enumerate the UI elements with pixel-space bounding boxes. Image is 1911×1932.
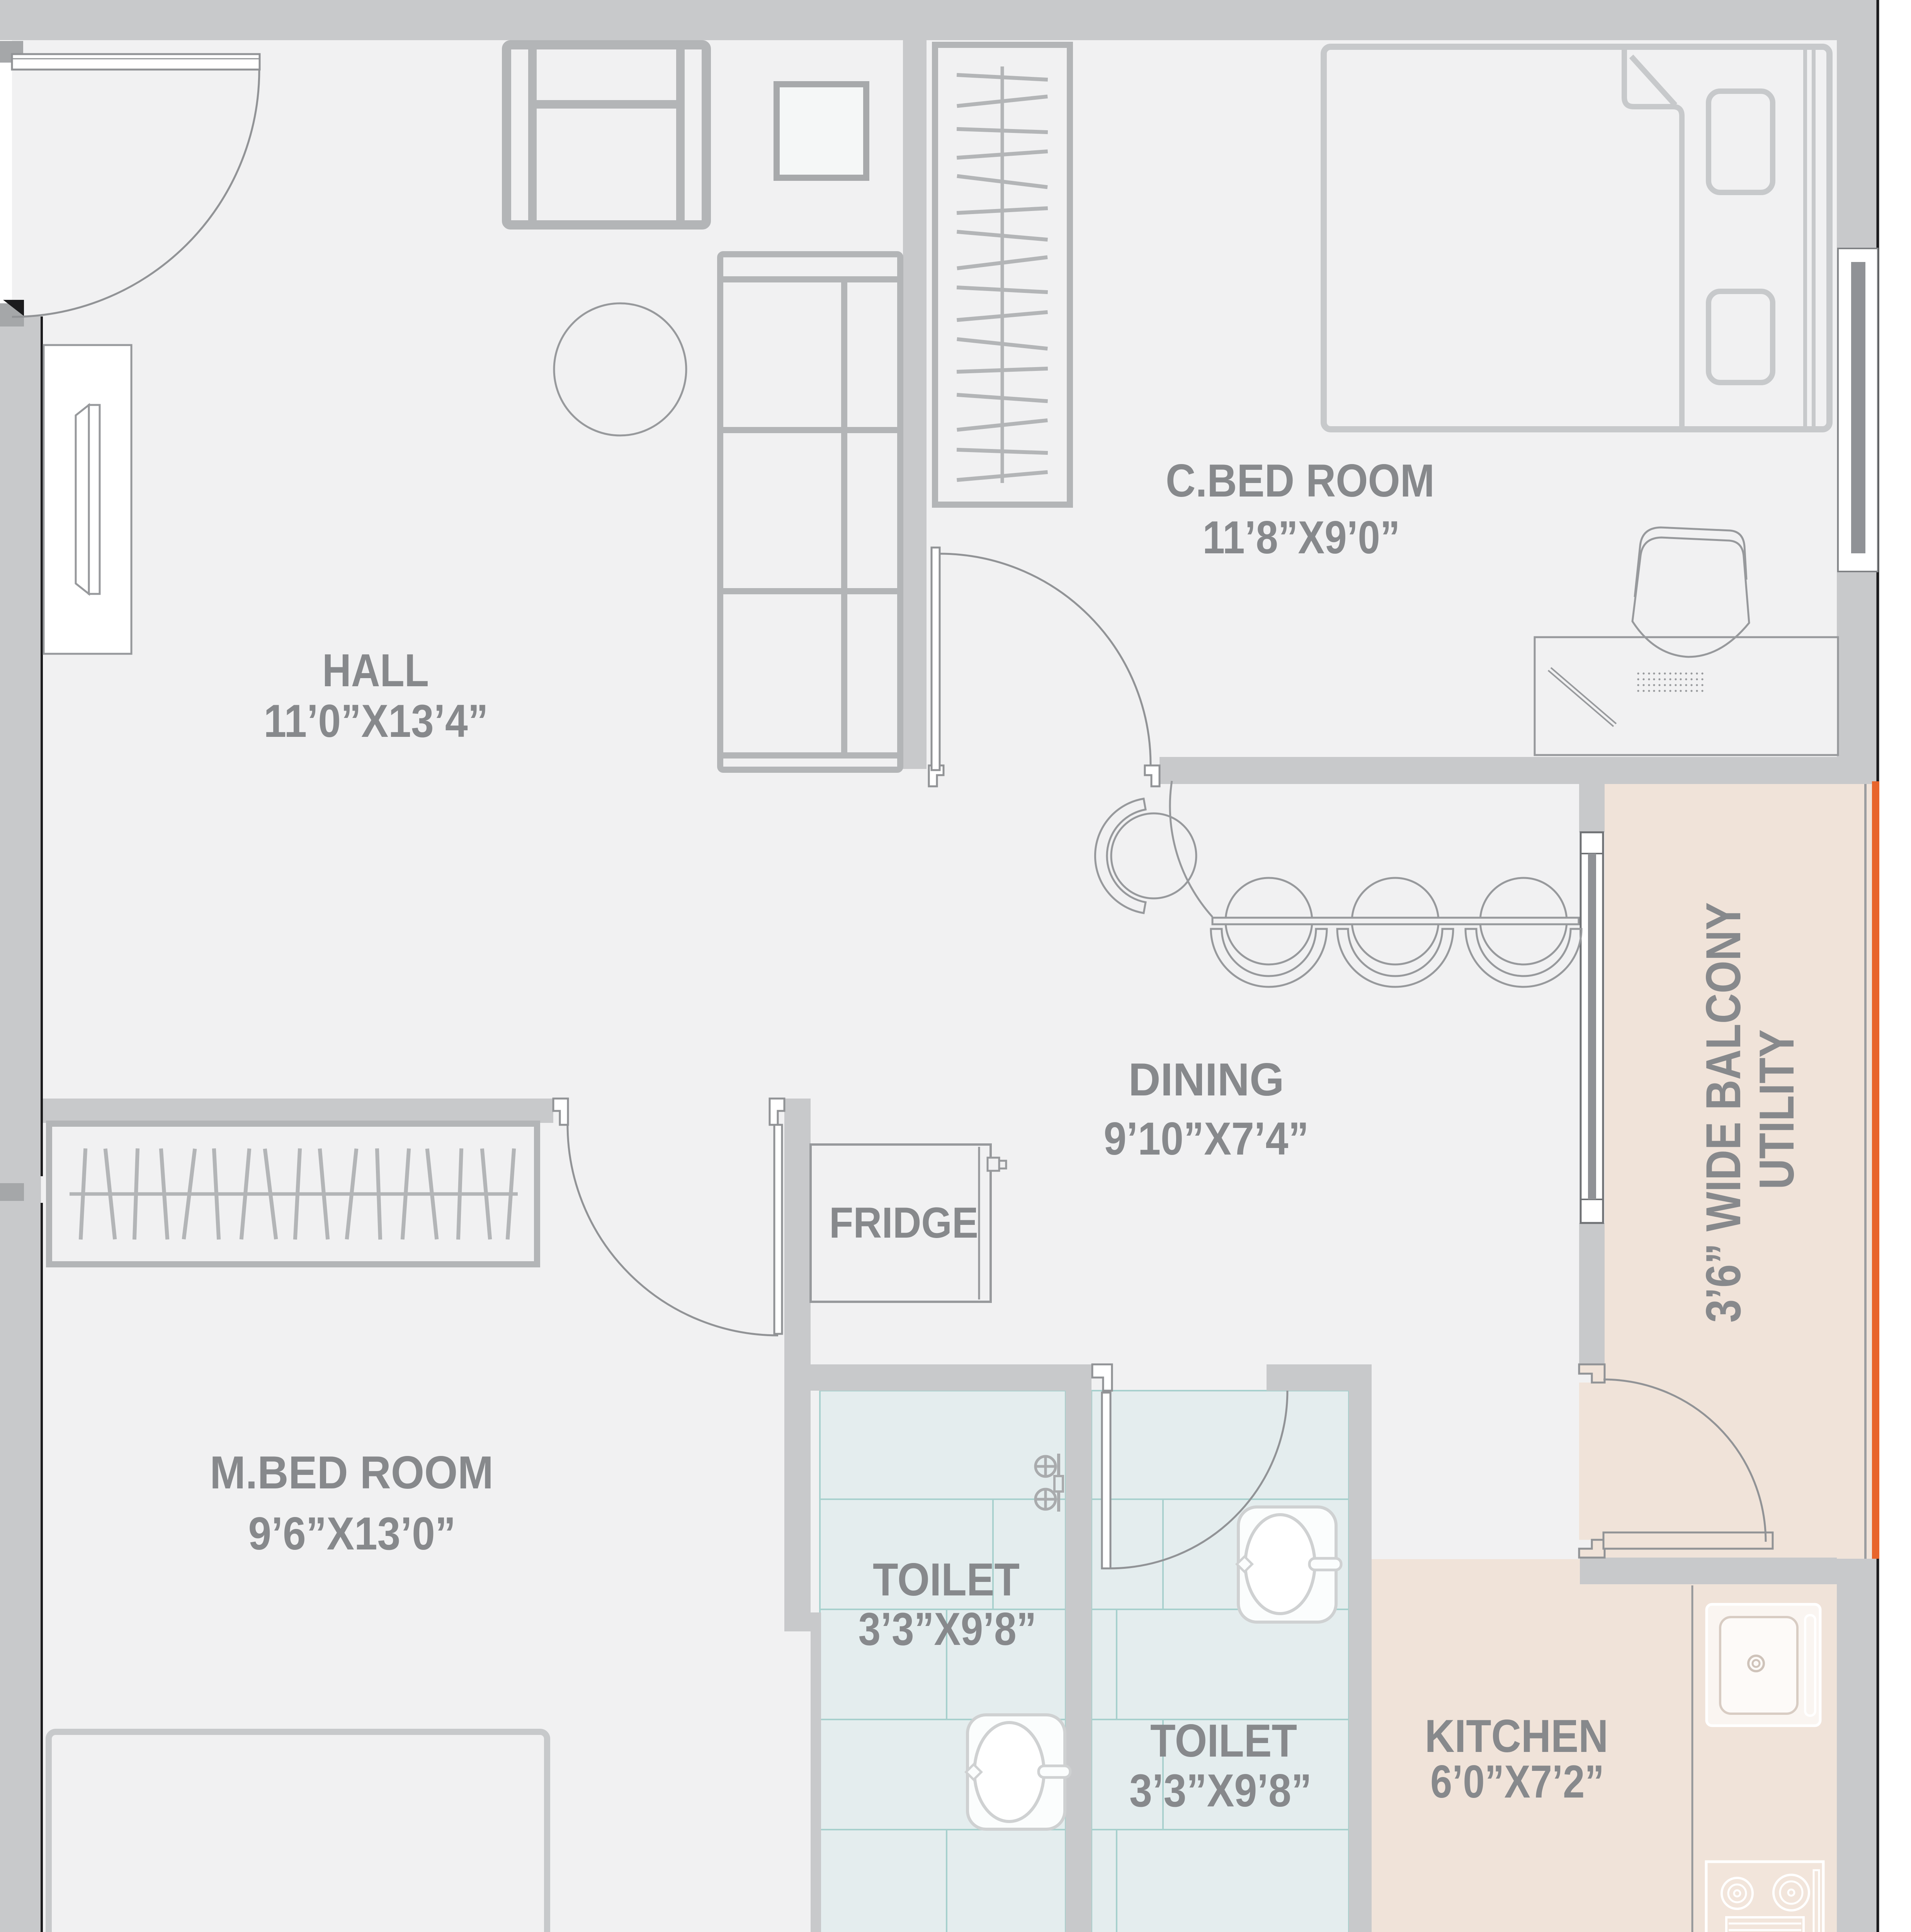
svg-text:6’0”X7’2”: 6’0”X7’2”: [1430, 1756, 1604, 1808]
svg-text:TOILET: TOILET: [1150, 1715, 1297, 1767]
svg-text:DINING: DINING: [1129, 1054, 1284, 1105]
svg-text:9’10”X7’4”: 9’10”X7’4”: [1104, 1113, 1309, 1165]
svg-text:FRIDGE: FRIDGE: [829, 1199, 978, 1247]
svg-text:C.BED ROOM: C.BED ROOM: [1166, 455, 1435, 507]
svg-text:HALL: HALL: [322, 645, 429, 696]
svg-text:KITCHEN: KITCHEN: [1425, 1710, 1608, 1762]
svg-text:11’8”X9’0”: 11’8”X9’0”: [1203, 512, 1400, 563]
svg-text:3’3”X9’8”: 3’3”X9’8”: [1129, 1765, 1312, 1816]
svg-text:M.BED ROOM: M.BED ROOM: [210, 1447, 493, 1498]
svg-text:3’3”X9’8”: 3’3”X9’8”: [859, 1603, 1037, 1655]
svg-text:9’6”X13’0”: 9’6”X13’0”: [248, 1508, 456, 1560]
svg-text:TOILET: TOILET: [873, 1554, 1020, 1605]
svg-text:3’6” WIDE BALCONY: 3’6” WIDE BALCONY: [1696, 902, 1751, 1323]
svg-text:11’0”X13’4”: 11’0”X13’4”: [264, 695, 488, 747]
svg-text:UTILITY: UTILITY: [1749, 1029, 1804, 1189]
